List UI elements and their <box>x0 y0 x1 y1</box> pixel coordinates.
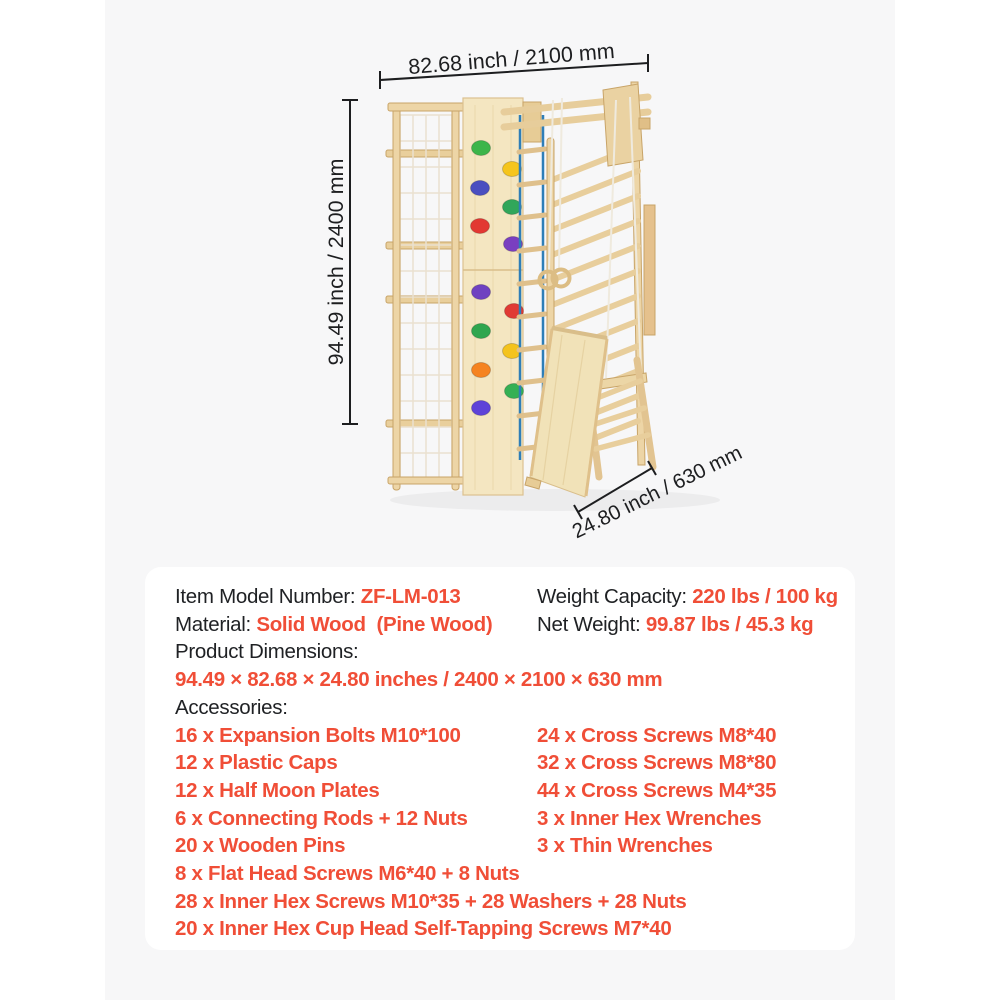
climbing-hold <box>471 219 490 234</box>
page: 82.68 inch / 2100 mm 94.49 inch / 2400 m… <box>0 0 1000 1000</box>
weight-capacity-row: Weight Capacity: 220 lbs / 100 kg <box>537 583 838 611</box>
accessory-item: 24 x Cross Screws M8*40 <box>537 722 825 750</box>
accessory-item: 12 x Half Moon Plates <box>175 777 537 805</box>
product-dimensions-value: 94.49 × 82.68 × 24.80 inches / 2400 × 21… <box>175 666 825 694</box>
item-model-value: ZF-LM-013 <box>361 585 461 608</box>
climbing-hold <box>503 200 522 215</box>
accessory-item: 28 x Inner Hex Screws M10*35 + 28 Washer… <box>175 888 825 916</box>
side-plank <box>644 205 655 335</box>
accessory-item: 44 x Cross Screws M4*35 <box>537 777 825 805</box>
accessory-item: 3 x Thin Wrenches <box>537 832 825 860</box>
product-dimensions-label: Product Dimensions: <box>175 638 825 666</box>
accessories-label: Accessories: <box>175 694 825 722</box>
weight-capacity-label: Weight Capacity: <box>537 585 687 608</box>
accessory-item: 3 x Inner Hex Wrenches <box>537 805 825 833</box>
accessory-item: 8 x Flat Head Screws M6*40 + 8 Nuts <box>175 860 825 888</box>
accessory-item: 32 x Cross Screws M8*80 <box>537 749 825 777</box>
material-value: Solid Wood (Pine Wood) <box>256 613 492 636</box>
spec-summary: Item Model Number: ZF-LM-013 Weight Capa… <box>175 583 825 638</box>
climbing-hold <box>472 285 491 300</box>
climbing-hold <box>472 363 491 378</box>
material-row: Material: Solid Wood (Pine Wood) <box>175 611 537 639</box>
width-dimension-label: 82.68 inch / 2100 mm <box>407 39 615 79</box>
accessories-list: 16 x Expansion Bolts M10*100 24 x Cross … <box>175 722 825 944</box>
net-weight-label: Net Weight: <box>537 613 640 636</box>
climbing-hold <box>471 181 490 196</box>
material-label: Material: <box>175 613 251 636</box>
height-dimension-label: 94.49 inch / 2400 mm <box>324 159 348 366</box>
accessory-item: 6 x Connecting Rods + 12 Nuts <box>175 805 537 833</box>
accessory-item: 20 x Wooden Pins <box>175 832 537 860</box>
spec-card: Item Model Number: ZF-LM-013 Weight Capa… <box>145 567 855 950</box>
product-dimension-diagram: 82.68 inch / 2100 mm 94.49 inch / 2400 m… <box>300 30 780 550</box>
accessory-item: 12 x Plastic Caps <box>175 749 537 777</box>
item-model-label: Item Model Number: <box>175 585 355 608</box>
weight-capacity-value: 220 lbs / 100 kg <box>692 585 838 608</box>
net-weight-value: 99.87 lbs / 45.3 kg <box>646 613 814 636</box>
accessory-item: 20 x Inner Hex Cup Head Self-Tapping Scr… <box>175 915 825 943</box>
net-weight-row: Net Weight: 99.87 lbs / 45.3 kg <box>537 611 838 639</box>
climbing-hold <box>503 162 522 177</box>
climbing-hold <box>472 141 491 156</box>
item-model-row: Item Model Number: ZF-LM-013 <box>175 583 537 611</box>
accessory-item: 16 x Expansion Bolts M10*100 <box>175 722 537 750</box>
climbing-hold <box>472 324 491 339</box>
climbing-hold <box>472 401 491 416</box>
